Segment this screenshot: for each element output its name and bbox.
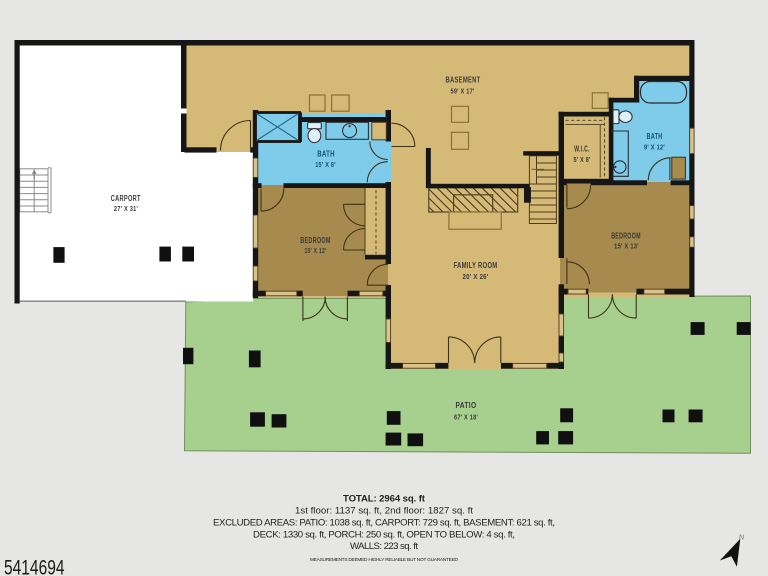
- svg-text:W.I.C.: W.I.C.: [574, 144, 590, 153]
- svg-text:1st floor: 1137 sq. ft, 2nd fl: 1st floor: 1137 sq. ft, 2nd floor: 1827 …: [295, 506, 473, 517]
- svg-text:5414694: 5414694: [4, 556, 65, 576]
- svg-text:MEASUREMENTS DEEMED HIGHLY REL: MEASUREMENTS DEEMED HIGHLY RELIABLE BUT …: [310, 557, 459, 563]
- svg-text:BEDROOM: BEDROOM: [611, 231, 641, 240]
- svg-text:15' X 8': 15' X 8': [315, 162, 336, 169]
- svg-text:5' X 8': 5' X 8': [574, 157, 591, 164]
- svg-text:15' X 12': 15' X 12': [305, 248, 327, 255]
- svg-text:TOTAL: 2964 sq. ft: TOTAL: 2964 sq. ft: [343, 494, 426, 505]
- svg-text:EXCLUDED AREAS: PATIO: 1038 sq: EXCLUDED AREAS: PATIO: 1038 sq. ft, CARP…: [213, 518, 555, 529]
- svg-text:WALLS: 223 sq. ft: WALLS: 223 sq. ft: [350, 541, 418, 552]
- svg-text:N: N: [739, 533, 745, 542]
- svg-text:9' X 12': 9' X 12': [644, 144, 665, 151]
- svg-text:67' X 18': 67' X 18': [454, 414, 478, 421]
- svg-text:59' X 17': 59' X 17': [451, 89, 475, 96]
- svg-text:BATH: BATH: [647, 132, 663, 141]
- svg-text:BEDROOM: BEDROOM: [300, 236, 331, 245]
- svg-text:15' X 13': 15' X 13': [614, 244, 639, 251]
- svg-text:BATH: BATH: [317, 150, 335, 159]
- svg-text:FAMILY ROOM: FAMILY ROOM: [454, 261, 498, 270]
- svg-text:CARPORT: CARPORT: [111, 194, 141, 203]
- svg-text:BASEMENT: BASEMENT: [446, 75, 481, 84]
- svg-text:20' X 26': 20' X 26': [463, 274, 489, 281]
- svg-text:27' X 31': 27' X 31': [114, 206, 138, 213]
- svg-text:DECK: 1330 sq. ft, PORCH: 250: DECK: 1330 sq. ft, PORCH: 250 sq. ft, OP…: [253, 529, 515, 540]
- svg-text:PATIO: PATIO: [456, 401, 477, 410]
